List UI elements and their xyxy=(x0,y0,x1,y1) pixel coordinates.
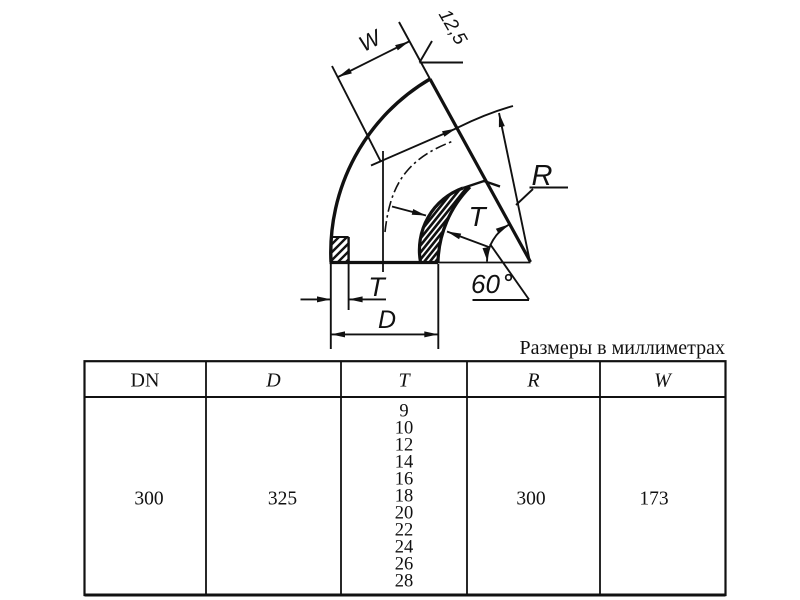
svg-text:T: T xyxy=(398,370,411,392)
svg-text:D: D xyxy=(265,370,281,392)
svg-text:173: 173 xyxy=(639,489,668,510)
svg-text:R: R xyxy=(532,160,553,192)
svg-text:325: 325 xyxy=(268,489,297,510)
svg-text:60: 60 xyxy=(471,269,500,299)
svg-text:DN: DN xyxy=(131,370,160,392)
svg-text:Размеры в миллиметрах: Размеры в миллиметрах xyxy=(520,337,725,359)
svg-text:300: 300 xyxy=(134,489,163,510)
svg-text:T: T xyxy=(368,272,387,302)
svg-text:D: D xyxy=(378,306,396,334)
svg-text:300: 300 xyxy=(516,489,545,510)
svg-text:W: W xyxy=(654,370,673,392)
svg-text:T: T xyxy=(468,201,487,232)
svg-text:R: R xyxy=(526,370,539,392)
svg-text:28: 28 xyxy=(395,571,414,591)
